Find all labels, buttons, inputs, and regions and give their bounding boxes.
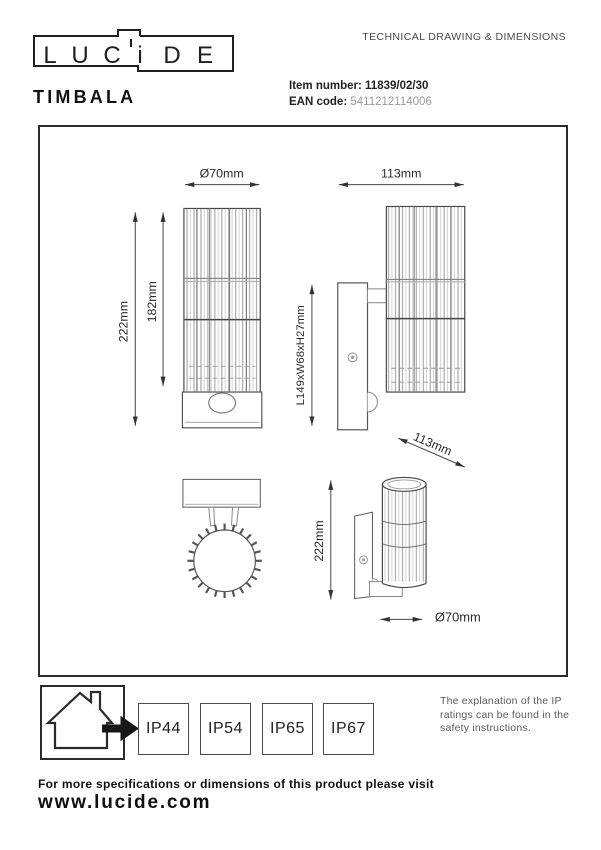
dim-front-shade-height: 182mm: [145, 281, 159, 322]
ean-value: 5411212114006: [350, 96, 431, 108]
dim-persp-height: 222mm: [312, 520, 326, 561]
front-view: [182, 208, 261, 427]
ean-row: EAN code: 5411212114006: [289, 95, 432, 111]
logo-letter: E: [197, 42, 213, 69]
ip-ratings-note: The explanation of the IP ratings can be…: [440, 695, 578, 736]
item-number-row: Item number: 11839/02/30: [289, 79, 432, 95]
dim-side-width: 113mm: [381, 167, 421, 181]
top-view: [183, 479, 262, 598]
logo-letter: L: [43, 42, 56, 69]
ip-rating-badge: IP54: [200, 703, 251, 755]
lamp-socket: [209, 393, 236, 413]
more-info-text: For more specifications or dimensions of…: [38, 777, 434, 791]
dim-side-bracket: L149xW68xH27mm: [295, 305, 307, 405]
product-name: TIMBALA: [33, 87, 136, 108]
item-number-value: 11839/02/30: [365, 80, 428, 92]
dim-front-total-height: 222mm: [116, 301, 130, 342]
side-view: [338, 206, 465, 429]
dim-side-depth: 113mm: [411, 430, 454, 459]
item-number-label: Item number:: [289, 80, 362, 92]
logo-letter: D: [163, 42, 180, 69]
lucide-logo-icon: L U C i D E: [30, 20, 240, 78]
ip-rating-badge: IP67: [323, 703, 374, 755]
logo-letter: C: [103, 42, 120, 69]
logo-letter: U: [71, 42, 88, 69]
ip-rating-badge: IP65: [262, 703, 313, 755]
dim-persp-diameter: Ø70mm: [435, 609, 481, 624]
house-icon: [42, 687, 123, 758]
dim-front-diameter: Ø70mm: [200, 167, 244, 181]
logo-letter: i: [137, 42, 142, 69]
sheet-tagline: TECHNICAL DRAWING & DIMENSIONS: [300, 31, 566, 43]
website-link[interactable]: www.lucide.com: [38, 792, 211, 814]
technical-drawing: Ø70mm 222mm 182mm: [40, 127, 566, 675]
ean-label: EAN code:: [289, 96, 347, 108]
ip-rating-badge: IP44: [138, 703, 189, 755]
indoor-use-box: [40, 685, 125, 760]
technical-drawing-frame: Ø70mm 222mm 182mm: [38, 125, 568, 677]
product-codes: Item number: 11839/02/30 EAN code: 54112…: [289, 79, 432, 110]
spec-sheet: L U C i D E TECHNICAL DRAWING & DIMENSIO…: [0, 0, 601, 850]
perspective-view: [355, 477, 426, 598]
shade-top-circle: [194, 530, 256, 592]
